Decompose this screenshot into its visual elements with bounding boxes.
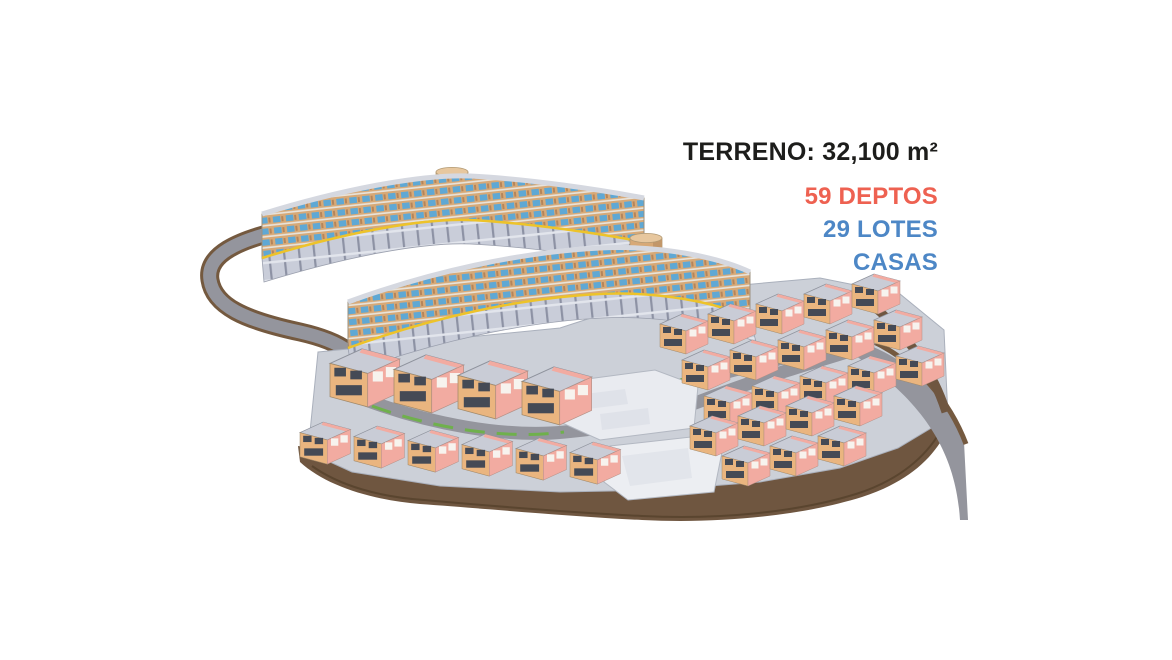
lotes-stat: 29 LOTES [683, 213, 938, 246]
terreno-value: 32,100 m² [822, 138, 938, 166]
terreno-label: TERRENO: [683, 138, 815, 166]
site-3d-rendering [0, 0, 1172, 660]
stats-overlay: TERRENO: 32,100 m² 59 DEPTOS 29 LOTES CA… [683, 136, 938, 279]
terreno-stat: TERRENO: 32,100 m² [683, 136, 938, 169]
slide: TERRENO: 32,100 m² 59 DEPTOS 29 LOTES CA… [0, 0, 1172, 660]
deptos-stat: 59 DEPTOS [683, 180, 938, 213]
casas-stat: CASAS [683, 246, 938, 279]
